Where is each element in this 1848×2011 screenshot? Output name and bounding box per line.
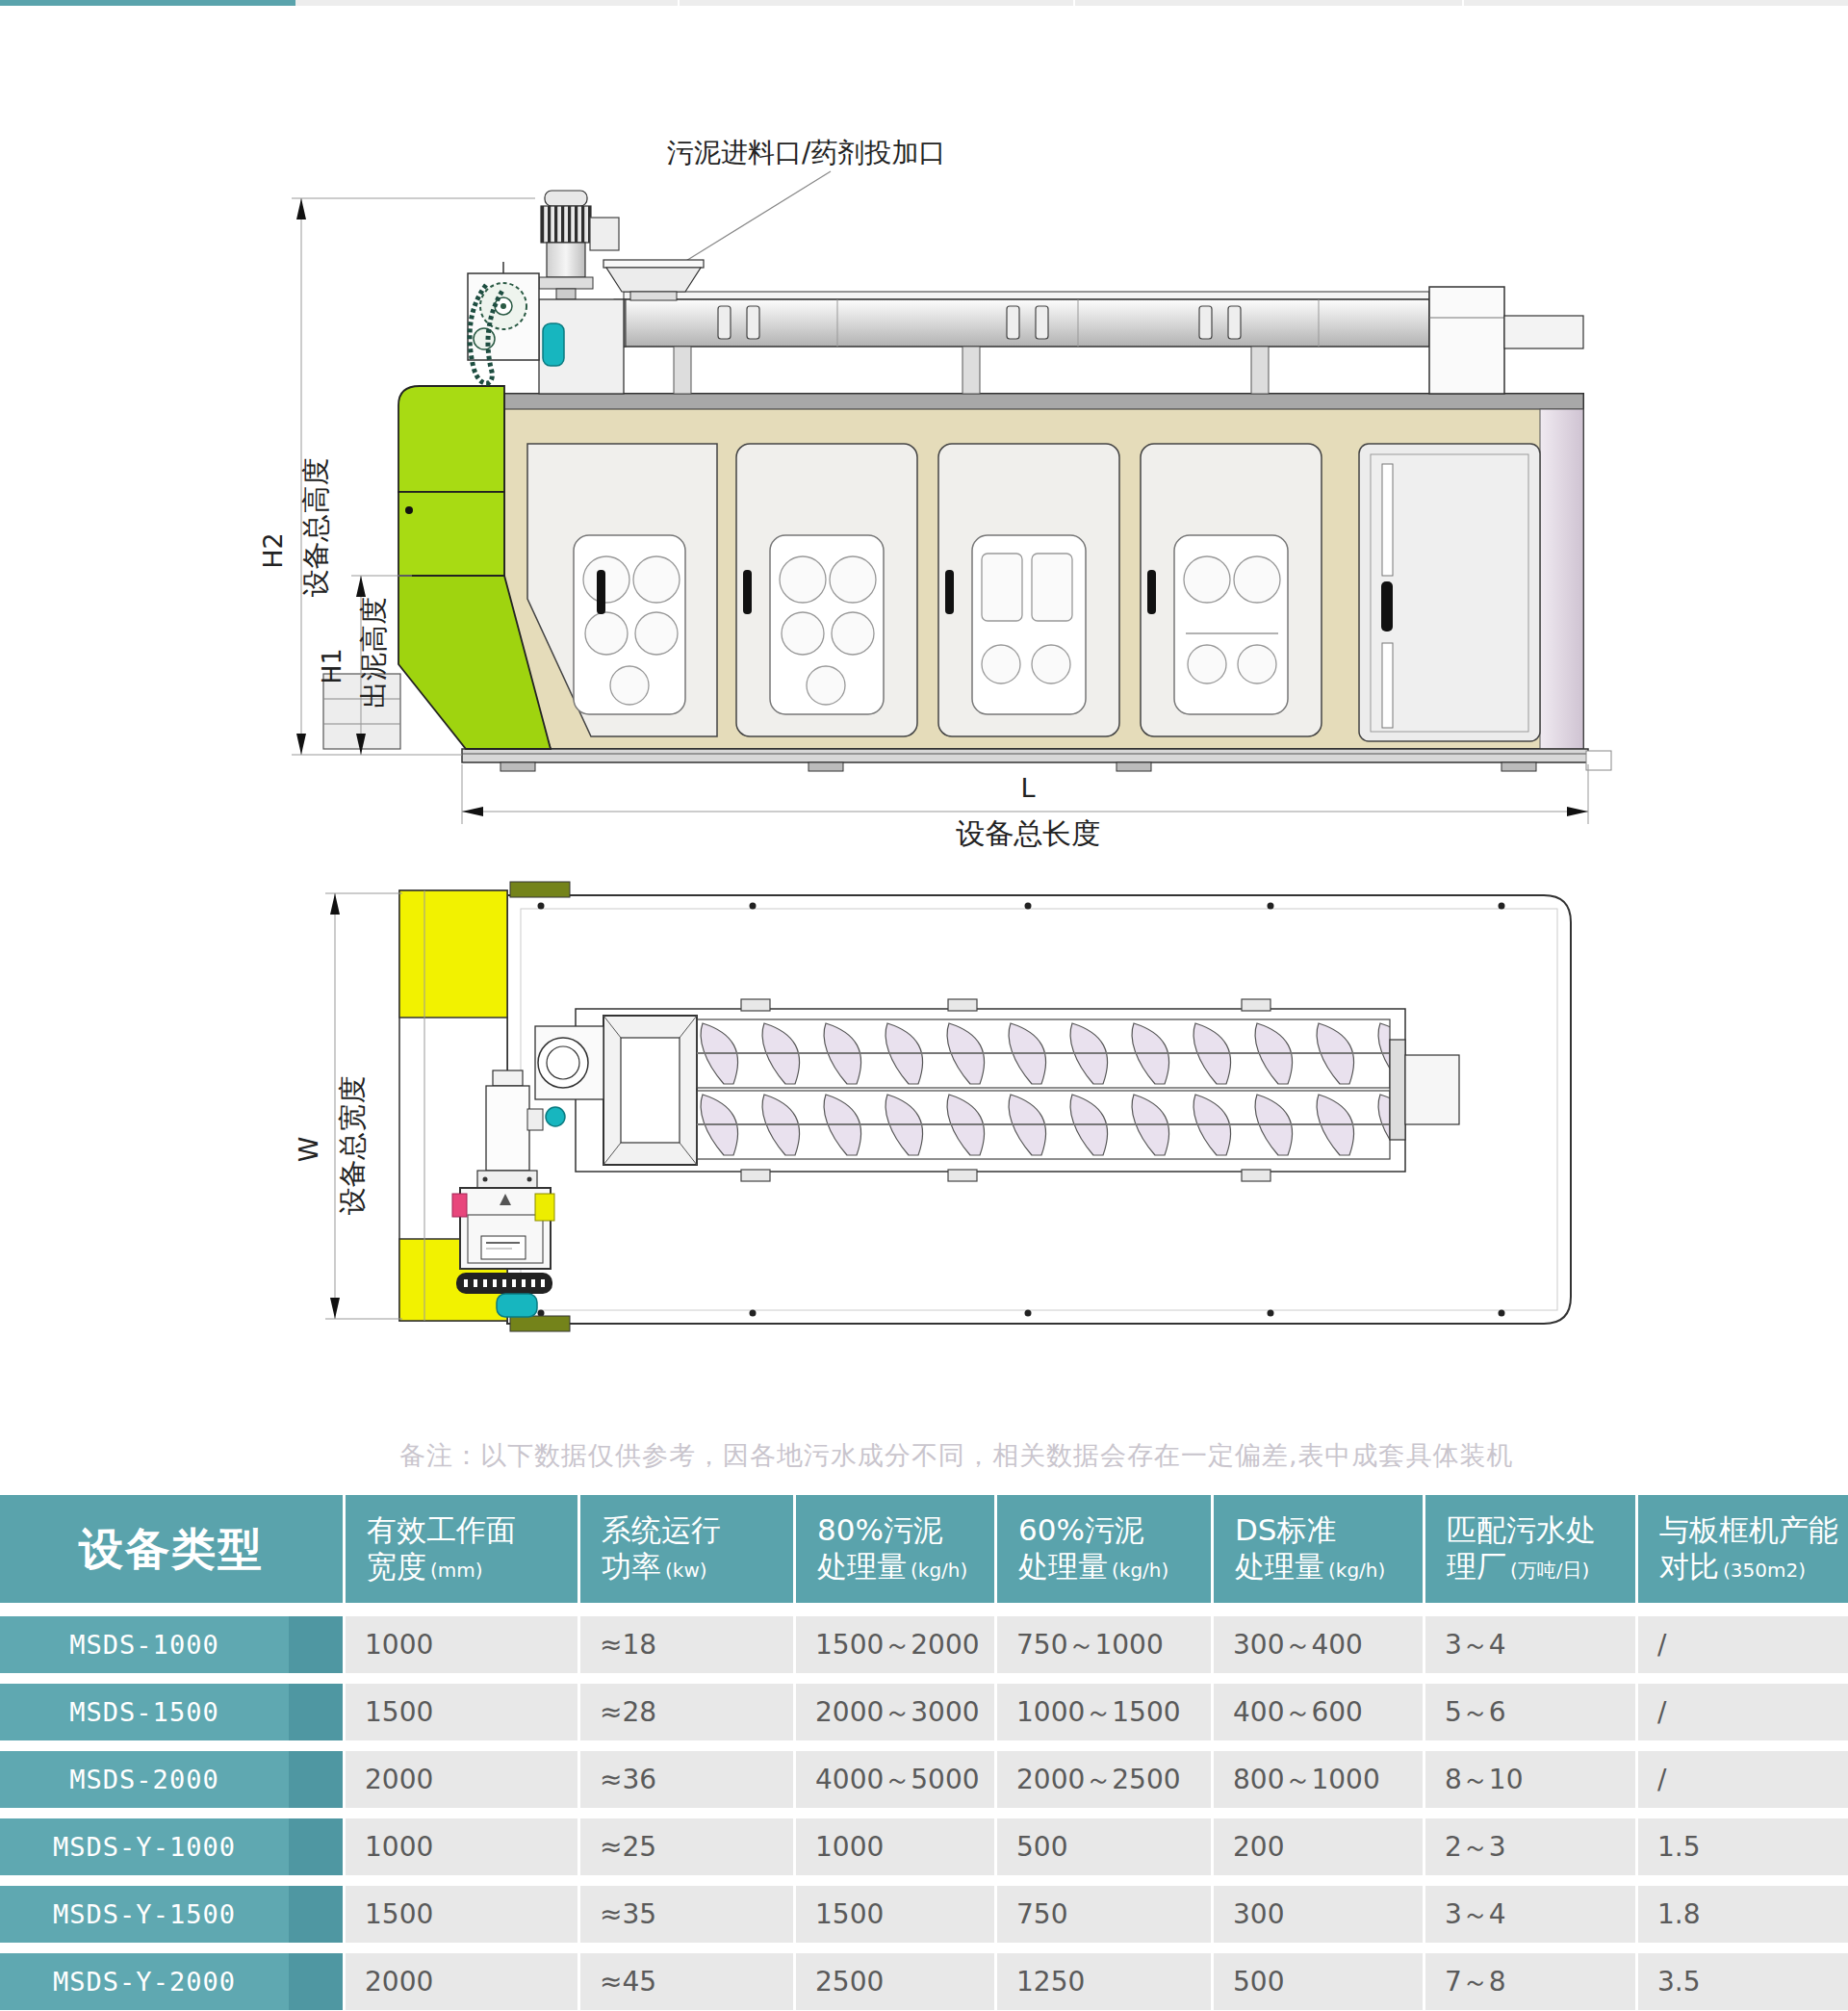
header-line1: 80%污泥 xyxy=(817,1512,994,1549)
value-cell: 1000 xyxy=(796,1818,994,1875)
header-cell: 80%污泥处理量(kg/h) xyxy=(796,1495,994,1603)
gearbox-chain xyxy=(468,262,539,383)
page: 污泥进料口/药剂投加口 xyxy=(0,0,1848,2011)
header-cell: 匹配污水处理厂(万吨/日) xyxy=(1425,1495,1635,1603)
hopper-neck xyxy=(630,292,677,300)
value-cell: 1000～1500 xyxy=(997,1684,1211,1740)
value-cell: 5～6 xyxy=(1425,1684,1635,1740)
value-cell: ≈45 xyxy=(580,1953,793,2010)
leader-line xyxy=(677,171,831,267)
screw-end-support xyxy=(1405,1055,1459,1124)
value-cell: ≈25 xyxy=(580,1818,793,1875)
value-cell: 2000 xyxy=(346,1953,577,2010)
model-cell: MSDS-Y-1000 xyxy=(0,1818,343,1875)
header-cell: 有效工作面宽度(mm) xyxy=(346,1495,577,1603)
value-cell: 2000～2500 xyxy=(997,1751,1211,1808)
header-line1: 与板框机产能 xyxy=(1659,1512,1848,1549)
disclaimer-note: 备注：以下数据仅供参考，因各地污水成分不同，相关数据会存在一定偏差,表中成套具体… xyxy=(399,1438,1514,1473)
discharge-housing xyxy=(1429,287,1504,394)
discharge-step xyxy=(1504,316,1583,348)
value-cell: 4000～5000 xyxy=(796,1751,994,1808)
hopper-rim xyxy=(603,260,704,268)
panel-dot xyxy=(405,506,413,514)
foot xyxy=(1116,762,1151,771)
top-view: W 设备总宽度 xyxy=(294,882,1571,1331)
header-cell-model: 设备类型 xyxy=(0,1495,343,1603)
value-cell: 200 xyxy=(1214,1818,1423,1875)
spec-table-header: 设备类型 有效工作面宽度(mm) 系统运行功率(kw) 80%污泥处理量(kg/… xyxy=(0,1495,1848,1603)
value-cell: ≈28 xyxy=(580,1684,793,1740)
foot xyxy=(808,762,843,771)
dim-w-code: W xyxy=(294,1137,323,1163)
value-cell: 750 xyxy=(997,1886,1211,1943)
teal-coupling-top xyxy=(546,1107,565,1126)
yellow-marker xyxy=(535,1194,554,1221)
header-cell: 与板框机产能对比(350m2) xyxy=(1638,1495,1848,1603)
value-cell: 7～8 xyxy=(1425,1953,1635,2010)
dim-w-label: 设备总宽度 xyxy=(336,1076,369,1216)
value-cell: 750～1000 xyxy=(997,1616,1211,1673)
header-cell: 系统运行功率(kw) xyxy=(580,1495,793,1603)
table-row: MSDS-1000 1000 ≈18 1500～2000 750～1000 30… xyxy=(0,1616,1848,1673)
value-cell: 800～1000 xyxy=(1214,1751,1423,1808)
dim-h2-code: H2 xyxy=(258,532,288,568)
teal-roller xyxy=(497,1294,537,1317)
value-cell: 3～4 xyxy=(1425,1886,1635,1943)
foot xyxy=(1501,762,1536,771)
header-title: 设备类型 xyxy=(79,1522,264,1576)
technical-drawing: 污泥进料口/药剂投加口 xyxy=(0,0,1848,1425)
header-line1: 60%污泥 xyxy=(1018,1512,1211,1549)
value-cell: 1000 xyxy=(346,1818,577,1875)
header-line2: 宽度(mm) xyxy=(367,1549,577,1586)
model-cell: MSDS-1500 xyxy=(0,1684,343,1740)
door-vent xyxy=(1382,464,1393,576)
value-cell: / xyxy=(1638,1684,1848,1740)
header-line2: 处理量(kg/h) xyxy=(817,1549,994,1586)
header-cell: 60%污泥处理量(kg/h) xyxy=(997,1495,1211,1603)
value-cell: 1000 xyxy=(346,1616,577,1673)
screw-conveyor-tube xyxy=(624,299,1429,347)
table-row: MSDS-1500 1500 ≈28 2000～3000 1000～1500 4… xyxy=(0,1684,1848,1740)
value-cell: 500 xyxy=(1214,1953,1423,2010)
value-cell: 1500 xyxy=(796,1886,994,1943)
drive-motor xyxy=(539,191,619,299)
value-cell: 1500 xyxy=(346,1684,577,1740)
model-cell: MSDS-2000 xyxy=(0,1751,343,1808)
table-row: MSDS-2000 2000 ≈36 4000～5000 2000～2500 8… xyxy=(0,1751,1848,1808)
tube-supports xyxy=(674,347,1269,394)
value-cell: 2～3 xyxy=(1425,1818,1635,1875)
model-cell: MSDS-1000 xyxy=(0,1616,343,1673)
door-vent xyxy=(1382,643,1393,728)
value-cell: 2000～3000 xyxy=(796,1684,994,1740)
dim-h1-label: 出泥高度 xyxy=(357,597,390,709)
right-side-wall xyxy=(1540,409,1583,749)
dim-h1-code: H1 xyxy=(317,648,346,683)
header-line1: DS标准 xyxy=(1235,1512,1423,1549)
conveyor-cover xyxy=(624,292,1429,299)
value-cell: 1.5 xyxy=(1638,1818,1848,1875)
header-line2: 功率(kw) xyxy=(602,1549,793,1586)
base-bracket xyxy=(1586,751,1611,770)
value-cell: 2500 xyxy=(796,1953,994,2010)
pink-marker xyxy=(452,1194,467,1217)
dim-l-code: L xyxy=(1020,773,1035,803)
body-top-rail xyxy=(504,394,1583,409)
value-cell: 1.8 xyxy=(1638,1886,1848,1943)
dim-l-label: 设备总长度 xyxy=(956,816,1100,850)
value-cell: ≈18 xyxy=(580,1616,793,1673)
value-cell: 1250 xyxy=(997,1953,1211,2010)
value-cell: 3.5 xyxy=(1638,1953,1848,2010)
header-line2: 对比(350m2) xyxy=(1659,1549,1848,1586)
teal-coupling xyxy=(543,323,564,366)
value-cell: 1500 xyxy=(346,1886,577,1943)
green-panel-top xyxy=(398,386,504,492)
header-line2: 处理量(kg/h) xyxy=(1235,1549,1423,1586)
side-view: 污泥进料口/药剂投加口 xyxy=(258,137,1611,850)
value-cell: ≈36 xyxy=(580,1751,793,1808)
olive-tab-top xyxy=(510,882,570,897)
table-row: MSDS-Y-2000 2000 ≈45 2500 1250 500 7～8 3… xyxy=(0,1953,1848,2010)
screw-end-plate xyxy=(1390,1040,1405,1140)
header-line2: 处理量(kg/h) xyxy=(1018,1549,1211,1586)
green-panel-mid xyxy=(398,492,504,576)
value-cell: / xyxy=(1638,1751,1848,1808)
dim-h2-label: 设备总高度 xyxy=(299,458,332,598)
value-cell: 8～10 xyxy=(1425,1751,1635,1808)
feed-inlet-label: 污泥进料口/药剂投加口 xyxy=(667,137,945,168)
table-row: MSDS-Y-1000 1000 ≈25 1000 500 200 2～3 1.… xyxy=(0,1818,1848,1875)
foot xyxy=(500,762,535,771)
value-cell: 500 xyxy=(997,1818,1211,1875)
cabinet-door xyxy=(1371,454,1528,732)
olive-tab-bottom xyxy=(510,1316,570,1331)
value-cell: ≈35 xyxy=(580,1886,793,1943)
value-cell: / xyxy=(1638,1616,1848,1673)
header-line1: 匹配污水处 xyxy=(1447,1512,1635,1549)
header-cell: DS标准处理量(kg/h) xyxy=(1214,1495,1423,1603)
yellow-block-top xyxy=(399,890,507,1018)
machine-base xyxy=(462,749,1588,762)
value-cell: 3～4 xyxy=(1425,1616,1635,1673)
model-cell: MSDS-Y-2000 xyxy=(0,1953,343,2010)
feed-hopper xyxy=(606,268,701,292)
value-cell: 400～600 xyxy=(1214,1684,1423,1740)
value-cell: 2000 xyxy=(346,1751,577,1808)
value-cell: 1500～2000 xyxy=(796,1616,994,1673)
header-line1: 有效工作面 xyxy=(367,1512,577,1549)
value-cell: 300 xyxy=(1214,1886,1423,1943)
header-line2: 理厂(万吨/日) xyxy=(1447,1549,1635,1586)
header-line1: 系统运行 xyxy=(602,1512,793,1549)
table-row: MSDS-Y-1500 1500 ≈35 1500 750 300 3～4 1.… xyxy=(0,1886,1848,1943)
model-cell: MSDS-Y-1500 xyxy=(0,1886,343,1943)
feed-box-inner xyxy=(621,1038,680,1143)
value-cell: 300～400 xyxy=(1214,1616,1423,1673)
